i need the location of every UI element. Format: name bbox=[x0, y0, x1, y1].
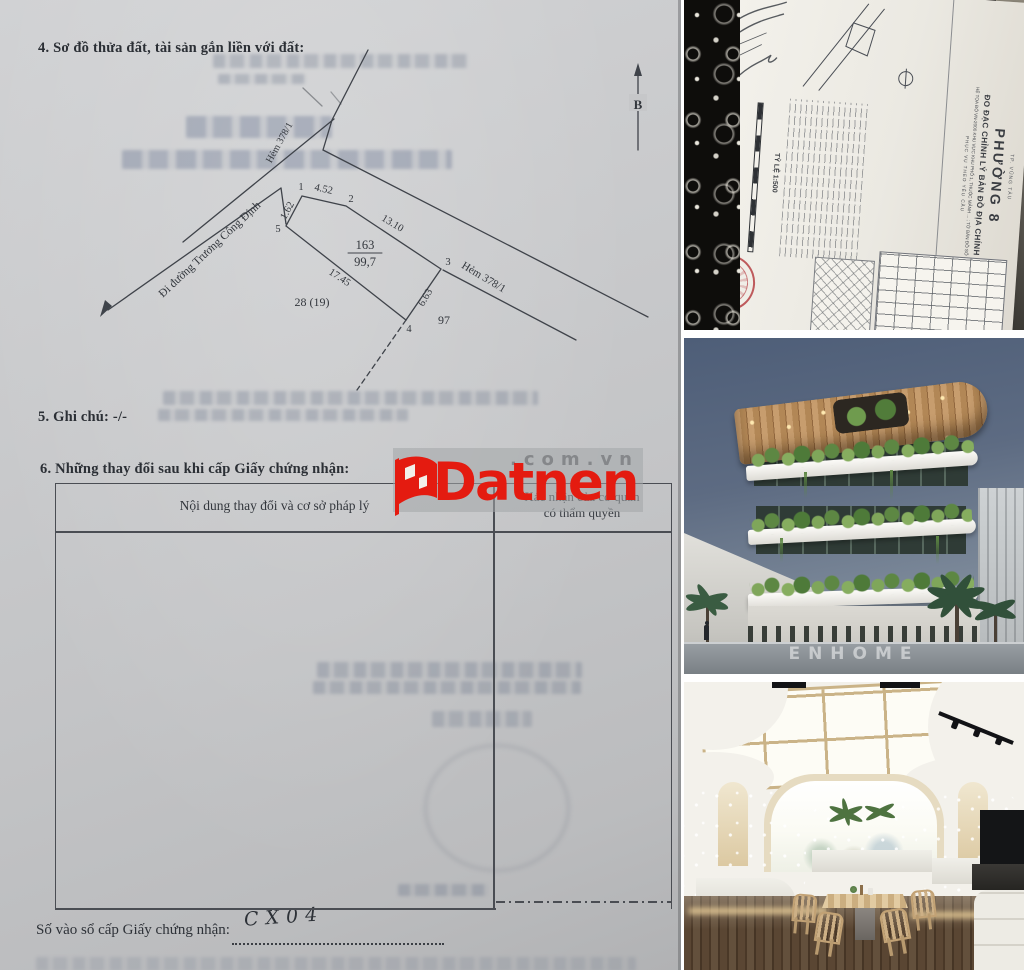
photo-column: TP. VŨNG TÀU PHƯỜNG 8 ĐO ĐẠC CHỈNH LÝ BẢ… bbox=[684, 0, 1024, 970]
changes-table: Nội dung thay đổi và cơ sở pháp lý Xác n… bbox=[55, 483, 672, 909]
dashed-tie-line bbox=[357, 320, 406, 390]
table-header-rule bbox=[56, 531, 671, 533]
stray-mark bbox=[303, 88, 322, 106]
lace-background bbox=[684, 0, 740, 330]
media-console bbox=[972, 864, 1024, 890]
watermark-brand: Datnen bbox=[433, 456, 638, 509]
palm-trees bbox=[898, 552, 1018, 652]
registry-number-label: Số vào sổ cấp Giấy chứng nhận: bbox=[36, 922, 230, 939]
dining-chair bbox=[910, 889, 936, 931]
alley-edge bbox=[443, 270, 576, 340]
dining-chair bbox=[790, 893, 815, 935]
table-pedestal bbox=[855, 908, 875, 940]
section5-heading: 5. Ghi chú: -/- bbox=[38, 409, 127, 426]
vicinity-map bbox=[810, 257, 875, 330]
section6-heading: 6. Những thay đổi sau khi cấp Giấy chứng… bbox=[40, 461, 349, 478]
table-plant-sprig bbox=[850, 886, 857, 893]
road-edge bbox=[183, 119, 334, 242]
vertex-label: 4 bbox=[406, 324, 412, 335]
road-label: Đi đường Trương Công Định bbox=[157, 199, 264, 300]
table-bottom-border bbox=[55, 908, 496, 910]
table-top bbox=[822, 894, 908, 908]
notes-text-block bbox=[779, 99, 868, 262]
certificate-page: 4. Sơ đồ thửa đất, tài sản gắn liền với … bbox=[0, 0, 681, 970]
hanging-vine bbox=[780, 538, 783, 562]
parcel-area: 99,7 bbox=[354, 255, 376, 269]
edge-length: 4.52 bbox=[313, 182, 333, 197]
parcel-number: 163 bbox=[356, 238, 375, 252]
plot-diagram: B 1 2 3 4 5 4.52 1.62 13.10 6.63 17.45 1… bbox=[0, 0, 681, 445]
vertex-label: 1 bbox=[298, 182, 303, 193]
render-watermark: ENHOME bbox=[684, 644, 1024, 664]
north-label: B bbox=[634, 97, 643, 112]
pedestrian-silhouette bbox=[704, 625, 709, 640]
table-bottle bbox=[860, 885, 863, 895]
hanging-vine bbox=[804, 472, 807, 498]
table-bottom-border-dashdot bbox=[496, 901, 672, 903]
cadastral-sheet: TP. VŨNG TÀU PHƯỜNG 8 ĐO ĐẠC CHỈNH LÝ BẢ… bbox=[698, 0, 1024, 330]
table-cup bbox=[868, 888, 873, 895]
palm-fronds bbox=[822, 788, 902, 834]
table-divider bbox=[493, 484, 495, 909]
photo-building-render: ENHOME bbox=[684, 338, 1024, 674]
hanging-vine bbox=[890, 470, 893, 500]
photo-interior-render bbox=[684, 682, 1024, 970]
track-light bbox=[772, 682, 806, 688]
palm-tree-left bbox=[684, 568, 744, 648]
north-arrowhead bbox=[634, 63, 642, 76]
coordinates-table bbox=[874, 251, 1008, 330]
edge-length: 6.63 bbox=[416, 287, 435, 308]
track-light bbox=[880, 682, 920, 688]
vertex-label: 5 bbox=[275, 224, 280, 235]
photo-cadastral-sheet: TP. VŨNG TÀU PHƯỜNG 8 ĐO ĐẠC CHỈNH LÝ BẢ… bbox=[684, 0, 1024, 330]
alley-label: Hẻm 378/1 bbox=[264, 121, 295, 165]
listing-collage: 4. Sơ đồ thửa đất, tài sản gắn liền với … bbox=[0, 0, 1024, 970]
vertex-label: 3 bbox=[445, 257, 450, 268]
vertex-label: 2 bbox=[348, 194, 353, 205]
tv-screen bbox=[980, 810, 1024, 864]
adjacent-parcel: 97 bbox=[438, 313, 450, 327]
stray-mark bbox=[331, 92, 341, 104]
datnen-logo-icon bbox=[385, 454, 439, 518]
planter-box bbox=[812, 850, 932, 872]
adjacent-parcel: 28 (19) bbox=[295, 295, 330, 309]
edge-length: 17.45 bbox=[326, 267, 352, 289]
alley-label: Hẻm 378/1 bbox=[459, 260, 507, 296]
cropped-bottom-line bbox=[36, 957, 636, 970]
site-watermark: .com.vn Datnen bbox=[391, 448, 649, 524]
white-cabinet bbox=[974, 890, 1024, 970]
scale-bar bbox=[747, 102, 763, 252]
